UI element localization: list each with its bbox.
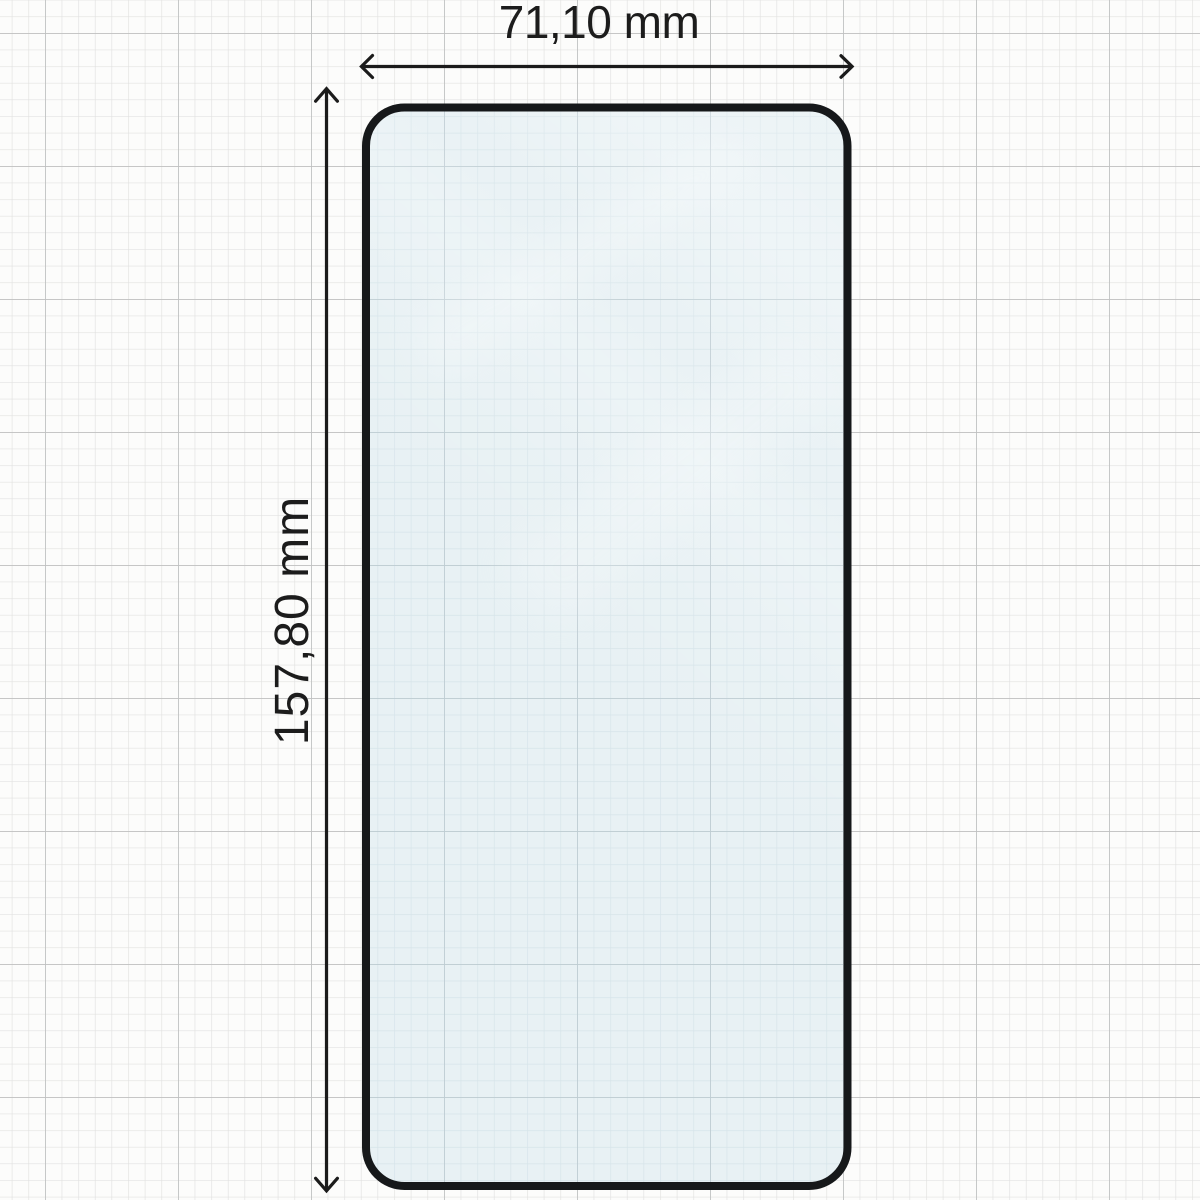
- svg-text:71,10 mm: 71,10 mm: [499, 0, 700, 48]
- svg-text:157,80 mm: 157,80 mm: [266, 496, 319, 745]
